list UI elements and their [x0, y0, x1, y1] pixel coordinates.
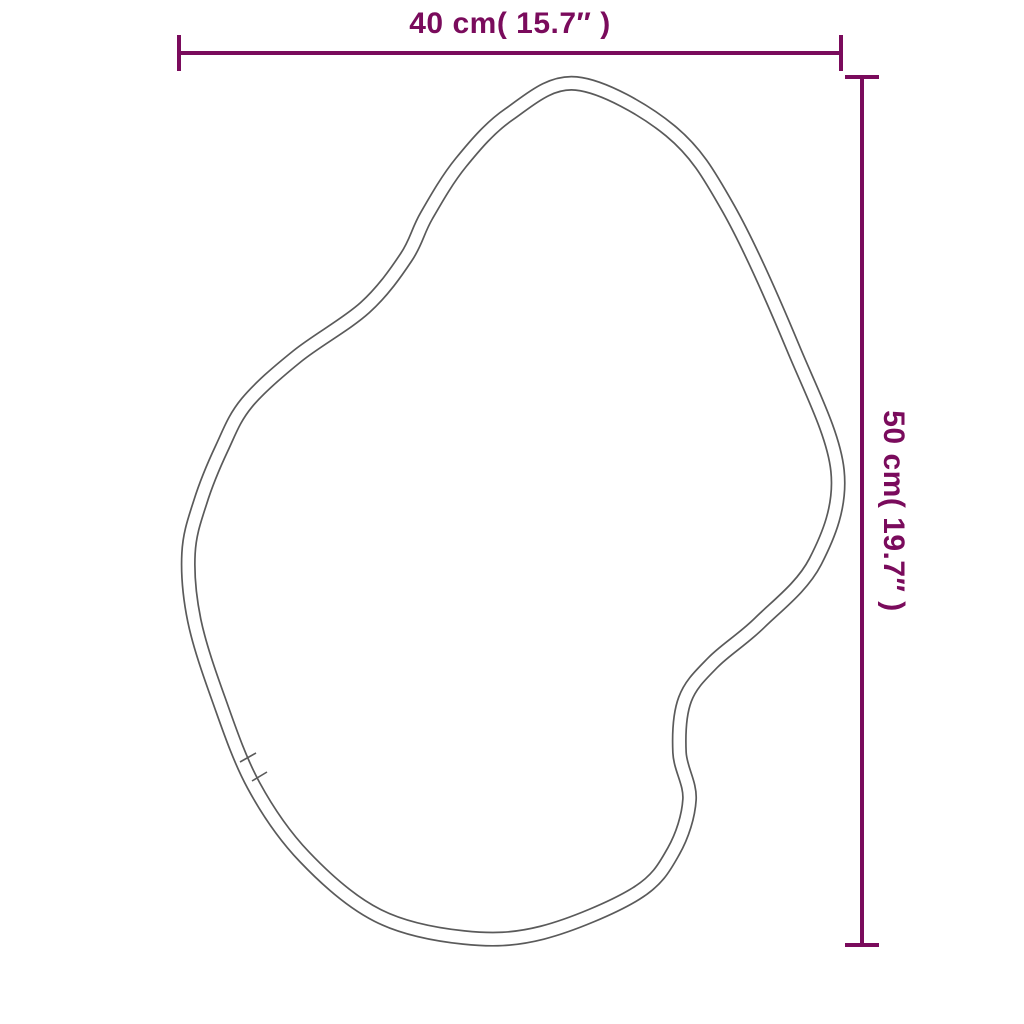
mirror-outline-band-inner-white: [188, 83, 838, 939]
dimension-lines-group: [179, 35, 879, 947]
diagram-canvas: 40 cm( 15.7″ ) 50 cm( 19.7″ ): [0, 0, 1024, 1024]
width-dimension-label: 40 cm( 15.7″ ): [179, 7, 841, 41]
height-dimension-label: 50 cm( 19.7″ ): [876, 331, 910, 691]
mirror-outline-group: [188, 83, 838, 939]
mirror-dimension-figure: [0, 0, 1024, 1024]
mirror-outline-band: [188, 83, 838, 939]
